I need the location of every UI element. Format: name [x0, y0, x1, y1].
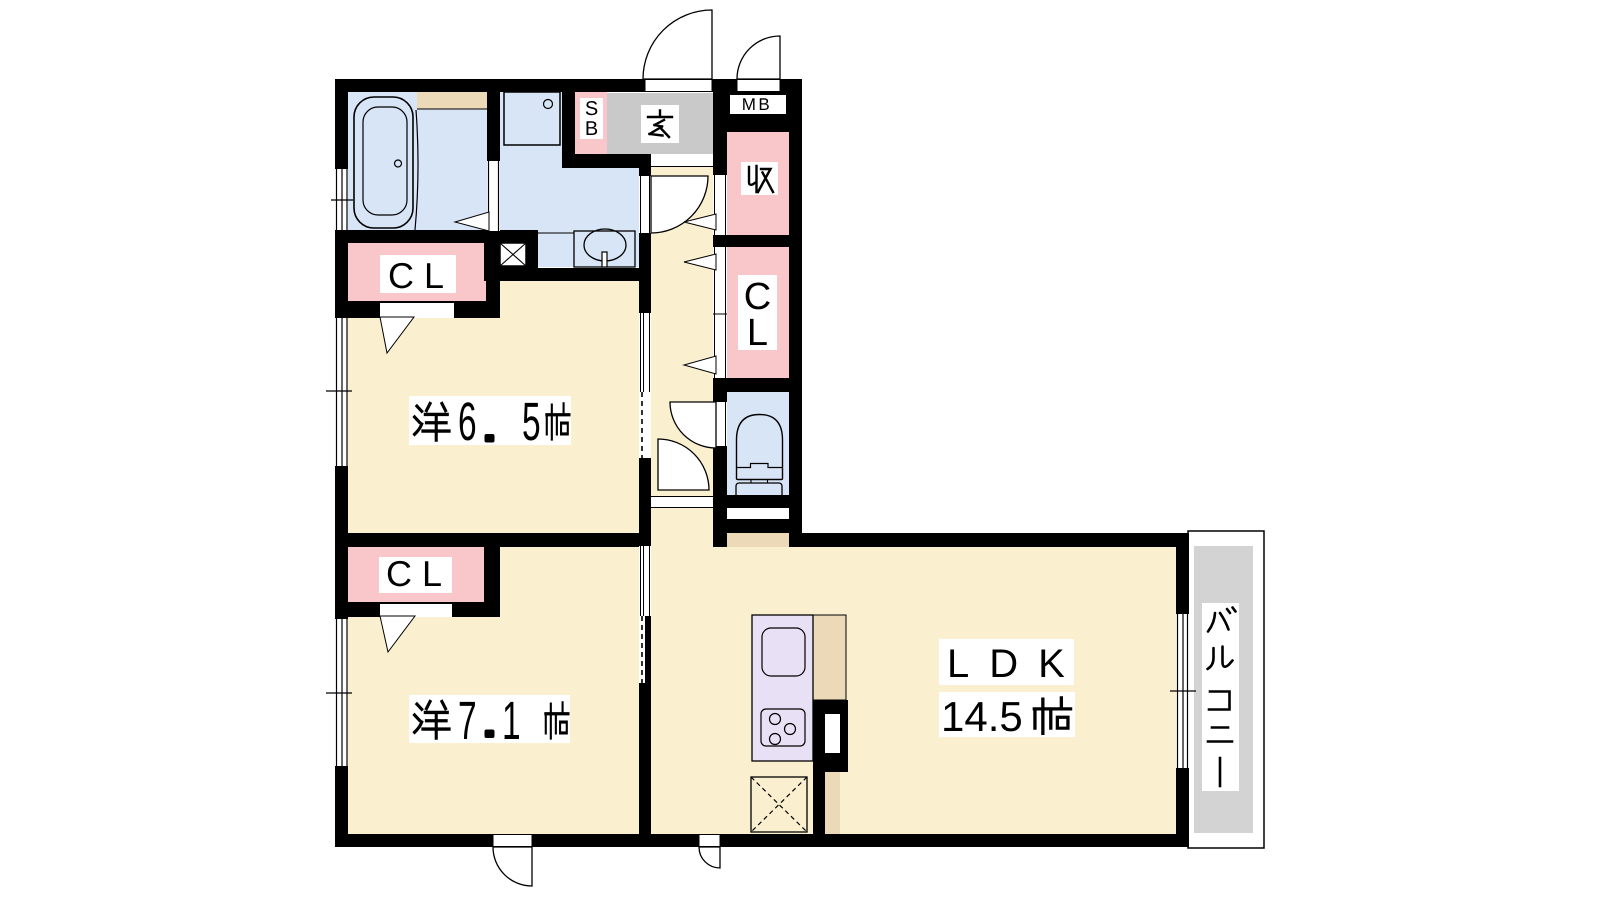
svg-text:1: 1	[502, 691, 521, 751]
svg-text:LDK: LDK	[947, 642, 1085, 686]
svg-text:MB: MB	[742, 95, 773, 114]
svg-text:S: S	[585, 98, 598, 120]
svg-text:6: 6	[458, 392, 477, 452]
svg-text:5: 5	[522, 392, 541, 452]
svg-text:14.5: 14.5	[941, 693, 1023, 740]
svg-text:L: L	[747, 312, 768, 354]
svg-text:CL: CL	[386, 553, 452, 594]
svg-text:7: 7	[458, 691, 477, 751]
svg-text:B: B	[585, 118, 598, 140]
svg-text:CL: CL	[388, 255, 454, 296]
